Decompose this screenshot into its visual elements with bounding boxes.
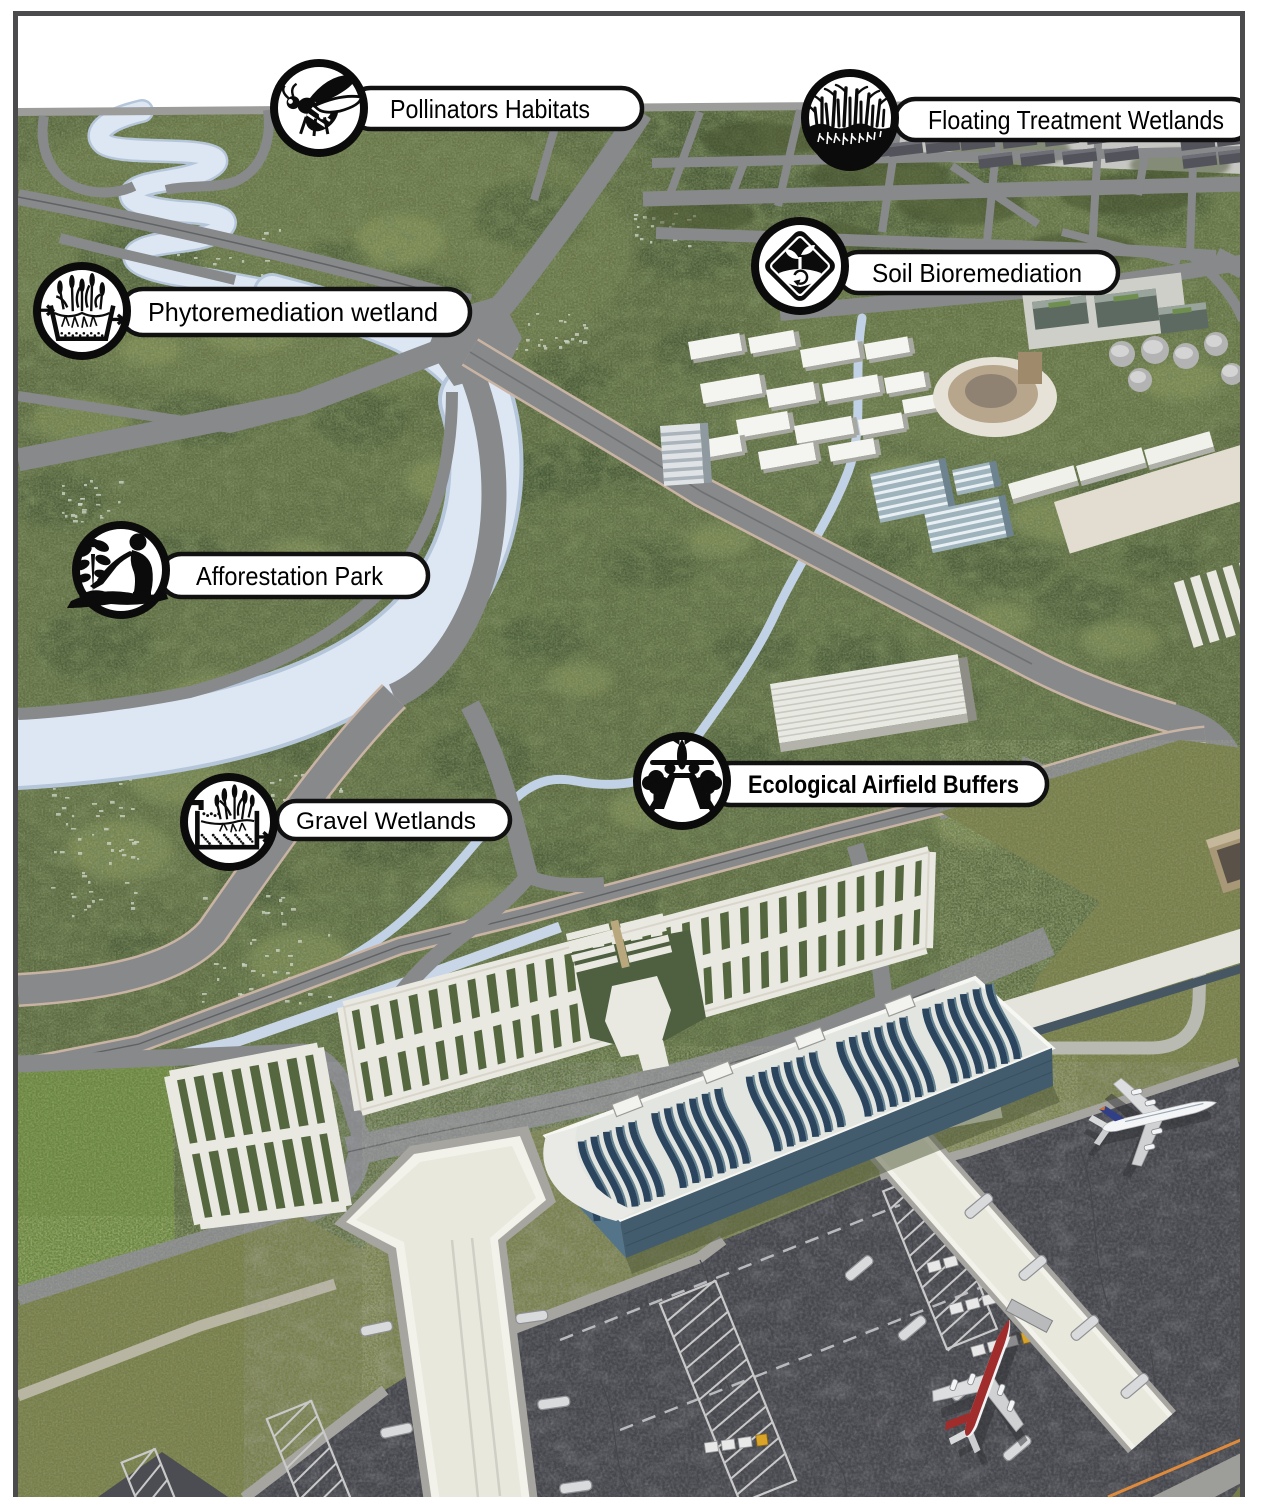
- svg-text:Floating Treatment Wetlands: Floating Treatment Wetlands: [928, 105, 1224, 135]
- svg-text:Soil Bioremediation: Soil Bioremediation: [872, 258, 1082, 288]
- svg-text:Pollinators Habitats: Pollinators Habitats: [390, 94, 590, 124]
- svg-text:Ecological Airfield Buffers: Ecological Airfield Buffers: [748, 771, 1019, 799]
- svg-text:Gravel Wetlands: Gravel Wetlands: [296, 808, 476, 835]
- svg-text:Phytoremediation wetland: Phytoremediation wetland: [148, 297, 438, 327]
- svg-text:Afforestation Park: Afforestation Park: [196, 561, 384, 591]
